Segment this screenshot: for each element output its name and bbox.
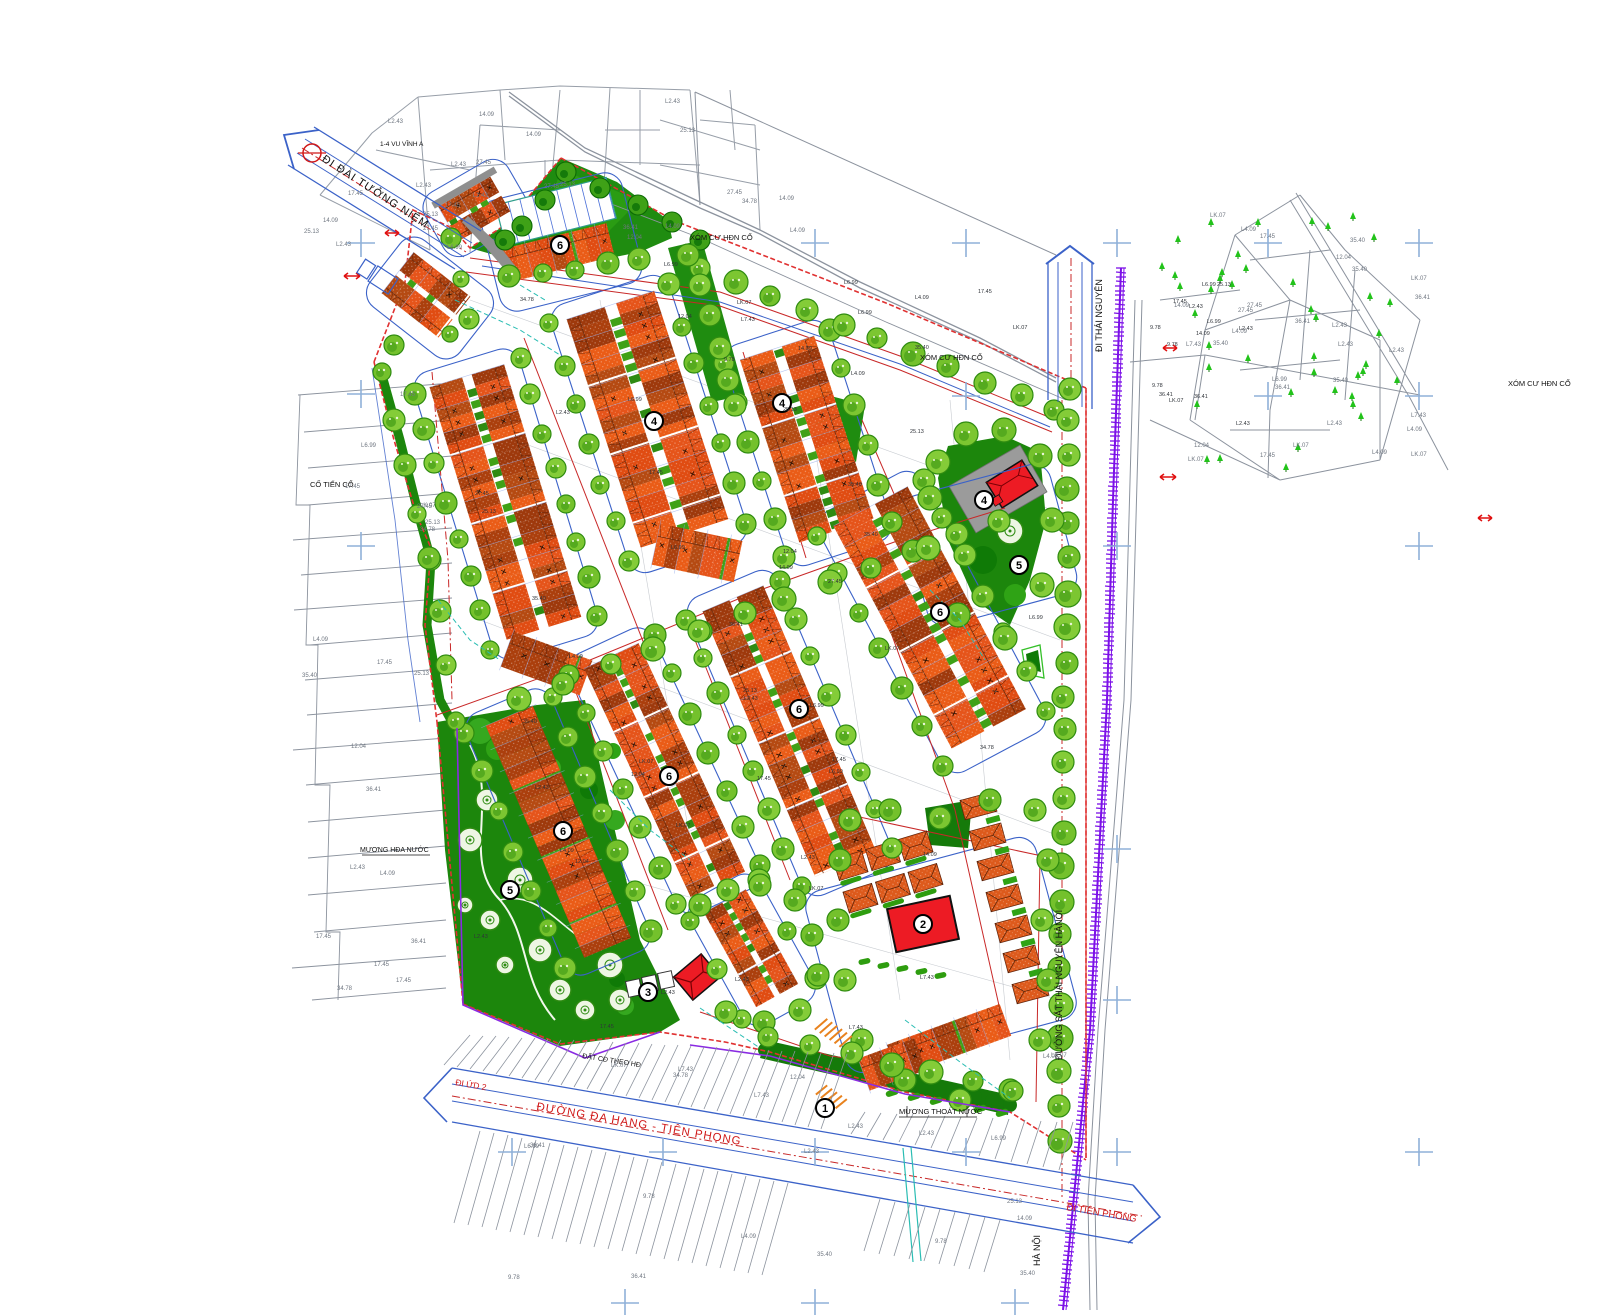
svg-text:L4.09: L4.09 (915, 295, 929, 301)
svg-text:L4.09: L4.09 (851, 371, 865, 377)
svg-text:9.78: 9.78 (724, 357, 735, 363)
svg-text:36.41: 36.41 (1275, 385, 1291, 391)
svg-text:17.45: 17.45 (377, 660, 393, 666)
svg-text:12.04: 12.04 (627, 235, 643, 241)
svg-text:ĐI THÁI NGUYÊN: ĐI THÁI NGUYÊN (1094, 279, 1104, 352)
svg-text:12.04: 12.04 (783, 549, 797, 555)
svg-text:25.13: 25.13 (743, 688, 757, 694)
svg-text:LK.07: LK.07 (1210, 213, 1226, 219)
svg-text:XÓM CƯ HĐN CỔ: XÓM CƯ HĐN CỔ (1508, 379, 1571, 388)
svg-text:27.45: 27.45 (475, 491, 489, 497)
svg-text:17.45: 17.45 (400, 392, 416, 398)
svg-text:L6.99: L6.99 (524, 1144, 540, 1150)
svg-text:17.45: 17.45 (345, 484, 361, 490)
svg-text:34.78: 34.78 (337, 986, 353, 992)
svg-text:MƯƠNG THOÁT NƯỚC: MƯƠNG THOÁT NƯỚC (899, 1107, 983, 1116)
svg-text:14.09: 14.09 (779, 565, 793, 571)
svg-text:L4.09: L4.09 (313, 637, 329, 643)
svg-text:LK.07: LK.07 (737, 300, 751, 306)
svg-text:36.41: 36.41 (1159, 392, 1173, 398)
svg-text:14.09: 14.09 (798, 346, 812, 352)
svg-text:25.13: 25.13 (482, 509, 496, 515)
svg-text:25.13: 25.13 (1217, 282, 1231, 288)
svg-text:9.78: 9.78 (643, 1194, 655, 1200)
svg-text:L6.99: L6.99 (361, 443, 377, 449)
svg-text:L2.43: L2.43 (350, 865, 366, 871)
svg-text:L2.43: L2.43 (1389, 348, 1405, 354)
svg-text:34.78: 34.78 (520, 297, 534, 303)
svg-text:XÓM CƯ HĐN CỔ: XÓM CƯ HĐN CỔ (920, 353, 983, 362)
svg-text:35.40: 35.40 (817, 1252, 833, 1258)
svg-text:14.09: 14.09 (479, 112, 495, 118)
svg-text:17.45: 17.45 (1260, 453, 1276, 459)
svg-text:LK.07: LK.07 (1411, 276, 1427, 282)
svg-text:17.45: 17.45 (978, 289, 992, 295)
svg-text:9.78: 9.78 (1152, 383, 1163, 389)
svg-text:L2.43: L2.43 (1236, 421, 1250, 427)
svg-text:L6.99: L6.99 (447, 245, 463, 251)
svg-text:12.04: 12.04 (631, 772, 645, 778)
svg-text:17.45: 17.45 (1173, 299, 1187, 305)
svg-text:35.40: 35.40 (864, 532, 878, 538)
svg-text:35.40: 35.40 (848, 482, 862, 488)
svg-text:25.13: 25.13 (680, 128, 696, 134)
svg-text:L4.09: L4.09 (560, 848, 574, 854)
svg-text:14.09: 14.09 (1196, 331, 1210, 337)
svg-text:L7.43: L7.43 (920, 975, 934, 981)
svg-text:L2.43: L2.43 (744, 696, 758, 702)
svg-text:35.40: 35.40 (1213, 341, 1229, 347)
svg-text:1: 1 (822, 1103, 828, 1115)
svg-text:L6.99: L6.99 (1207, 319, 1221, 325)
svg-text:L6.99: L6.99 (1029, 615, 1043, 621)
svg-text:14.09: 14.09 (526, 132, 542, 138)
svg-text:6: 6 (560, 826, 566, 838)
svg-text:L6.99: L6.99 (829, 769, 843, 775)
svg-text:L2.43: L2.43 (1239, 326, 1253, 332)
svg-text:17.45: 17.45 (445, 203, 461, 209)
svg-text:L2.43: L2.43 (416, 183, 432, 189)
svg-text:17.45: 17.45 (832, 757, 846, 763)
svg-text:4: 4 (651, 416, 658, 428)
svg-text:14.09: 14.09 (323, 218, 339, 224)
svg-text:14.09: 14.09 (665, 224, 681, 230)
svg-text:17.45: 17.45 (600, 1024, 614, 1030)
svg-text:36.41: 36.41 (411, 939, 427, 945)
svg-text:25.13: 25.13 (423, 212, 439, 218)
svg-text:27.45: 27.45 (544, 184, 560, 190)
svg-text:17.45: 17.45 (348, 191, 364, 197)
svg-text:L2.43: L2.43 (1189, 304, 1203, 310)
svg-text:35.40: 35.40 (1350, 238, 1366, 244)
svg-text:36.41: 36.41 (623, 225, 639, 231)
svg-text:12.04: 12.04 (1336, 255, 1352, 261)
svg-text:27.45: 27.45 (417, 504, 433, 510)
svg-text:12.04: 12.04 (678, 314, 692, 320)
svg-text:L7.43: L7.43 (1186, 342, 1202, 348)
svg-text:17.45: 17.45 (374, 962, 390, 968)
svg-text:L6.99: L6.99 (671, 545, 685, 551)
svg-text:MƯƠNG HĐA NƯỚC: MƯƠNG HĐA NƯỚC (360, 845, 429, 854)
svg-text:L2.43: L2.43 (804, 1149, 820, 1155)
svg-text:9.78: 9.78 (1167, 342, 1178, 348)
svg-text:L7.43: L7.43 (754, 1093, 770, 1099)
svg-text:L2.43: L2.43 (1338, 342, 1354, 348)
svg-text:L4.09: L4.09 (380, 871, 396, 877)
svg-text:3: 3 (645, 987, 651, 999)
svg-text:L7.43: L7.43 (1411, 413, 1427, 419)
svg-text:14.09: 14.09 (923, 852, 937, 858)
svg-text:17.45: 17.45 (396, 978, 412, 984)
svg-text:25.13: 25.13 (783, 407, 797, 413)
svg-text:4: 4 (981, 495, 988, 507)
svg-text:35.40: 35.40 (302, 673, 318, 679)
svg-text:L2.43: L2.43 (848, 1124, 864, 1130)
svg-text:L6.99: L6.99 (664, 262, 678, 268)
svg-text:9.78: 9.78 (935, 1239, 947, 1245)
svg-text:L2.43: L2.43 (1327, 421, 1343, 427)
svg-text:L4.09: L4.09 (1241, 227, 1257, 233)
svg-text:6: 6 (557, 240, 563, 252)
svg-text:14.09: 14.09 (1017, 1216, 1033, 1222)
svg-text:25.13: 25.13 (425, 520, 441, 526)
svg-text:34.78: 34.78 (420, 527, 436, 533)
svg-text:L6.99: L6.99 (858, 310, 872, 316)
svg-text:35.40: 35.40 (1020, 1271, 1036, 1277)
svg-text:XÓM CƯ HĐN CỔ: XÓM CƯ HĐN CỔ (690, 233, 753, 242)
svg-text:12.04: 12.04 (575, 859, 589, 865)
svg-text:L4.09: L4.09 (1372, 450, 1388, 456)
svg-text:LK.07: LK.07 (639, 759, 653, 765)
svg-text:L2.43: L2.43 (661, 990, 675, 996)
svg-text:L6.99: L6.99 (991, 1136, 1007, 1142)
svg-text:L4.09: L4.09 (741, 1234, 757, 1240)
svg-text:27.45: 27.45 (828, 579, 842, 585)
svg-text:35.40: 35.40 (1352, 267, 1368, 273)
svg-text:35.40: 35.40 (915, 345, 929, 351)
svg-text:LK.07: LK.07 (611, 1063, 627, 1069)
svg-text:L2.43: L2.43 (556, 410, 570, 416)
svg-text:17.45: 17.45 (649, 470, 663, 476)
svg-text:17.45: 17.45 (757, 776, 771, 782)
svg-text:L6.99: L6.99 (1272, 377, 1288, 383)
svg-text:LK.07: LK.07 (1169, 398, 1183, 404)
svg-text:HÀ NỘI: HÀ NỘI (1032, 1235, 1042, 1266)
svg-text:L2.43: L2.43 (919, 1131, 935, 1137)
svg-text:36.41: 36.41 (366, 787, 382, 793)
svg-text:35.40: 35.40 (1333, 378, 1349, 384)
svg-text:25.13: 25.13 (1007, 1199, 1023, 1205)
svg-text:6: 6 (937, 607, 943, 619)
svg-text:2: 2 (920, 919, 926, 931)
svg-text:LK.07: LK.07 (885, 646, 899, 652)
svg-text:L7.43: L7.43 (741, 317, 755, 323)
svg-text:L2.43: L2.43 (801, 855, 815, 861)
svg-text:5: 5 (1016, 560, 1022, 572)
svg-text:L6.99: L6.99 (844, 280, 858, 286)
svg-text:L6.99: L6.99 (1202, 282, 1216, 288)
svg-text:27.45: 27.45 (727, 190, 743, 196)
svg-text:9.78: 9.78 (508, 1275, 520, 1281)
svg-text:LK.07: LK.07 (1411, 452, 1427, 458)
svg-text:LK.07: LK.07 (1293, 443, 1309, 449)
svg-text:L7.43: L7.43 (678, 1067, 694, 1073)
svg-text:L2.43: L2.43 (665, 99, 681, 105)
svg-text:34.78: 34.78 (980, 745, 994, 751)
svg-text:25.13: 25.13 (304, 229, 320, 235)
svg-text:L6.99: L6.99 (628, 397, 642, 403)
svg-text:L4.09: L4.09 (569, 654, 583, 660)
svg-text:5: 5 (507, 885, 513, 897)
svg-text:L2.43: L2.43 (473, 193, 489, 199)
svg-text:L2.43: L2.43 (336, 242, 352, 248)
svg-text:L2.43: L2.43 (1332, 323, 1348, 329)
svg-text:L2.43: L2.43 (735, 977, 749, 983)
svg-text:9.78: 9.78 (1150, 325, 1161, 331)
svg-text:36.41: 36.41 (631, 1274, 647, 1280)
svg-text:L2.43: L2.43 (535, 785, 549, 791)
svg-text:17.45: 17.45 (1260, 234, 1276, 240)
svg-text:36.41: 36.41 (1295, 319, 1311, 325)
svg-text:L2.43: L2.43 (474, 934, 488, 940)
svg-text:LK.07: LK.07 (676, 823, 690, 829)
svg-text:27.45: 27.45 (1247, 303, 1263, 309)
svg-text:25.13: 25.13 (910, 429, 924, 435)
svg-text:27.45: 27.45 (476, 160, 492, 166)
svg-text:6: 6 (666, 771, 672, 783)
svg-text:6: 6 (796, 704, 802, 716)
svg-text:27.45: 27.45 (423, 226, 439, 232)
svg-text:35.40: 35.40 (523, 719, 537, 725)
svg-text:L2.43: L2.43 (451, 162, 467, 168)
svg-text:34.78: 34.78 (673, 1073, 689, 1079)
svg-text:L6.99: L6.99 (810, 703, 824, 709)
svg-text:L4.09: L4.09 (1407, 427, 1423, 433)
svg-text:34.78: 34.78 (742, 199, 758, 205)
svg-text:LK.07: LK.07 (1188, 457, 1204, 463)
svg-text:36.41: 36.41 (729, 622, 743, 628)
svg-text:12.04: 12.04 (1194, 443, 1210, 449)
svg-text:L2.43: L2.43 (388, 119, 404, 125)
svg-text:LK.07: LK.07 (1013, 325, 1027, 331)
svg-text:25.13: 25.13 (414, 671, 430, 677)
svg-text:25.13: 25.13 (560, 182, 576, 188)
svg-text:12.04: 12.04 (351, 744, 367, 750)
svg-text:14.09: 14.09 (779, 196, 795, 202)
svg-text:35.40: 35.40 (532, 596, 546, 602)
svg-text:L4.09: L4.09 (790, 228, 806, 234)
svg-text:LK.07: LK.07 (1051, 1053, 1067, 1059)
svg-text:ĐƯỜNG SẮT THÁI NGUYÊN HÀNỘI: ĐƯỜNG SẮT THÁI NGUYÊN HÀNỘI (1054, 910, 1064, 1060)
svg-text:36.41: 36.41 (1415, 295, 1431, 301)
svg-text:17.45: 17.45 (316, 934, 332, 940)
svg-text:12.04: 12.04 (790, 1075, 806, 1081)
svg-text:L7.43: L7.43 (849, 1025, 863, 1031)
svg-text:LK.07: LK.07 (809, 886, 823, 892)
svg-text:36.41: 36.41 (1194, 394, 1208, 400)
svg-text:1-4 VU VĨNH A: 1-4 VU VĨNH A (380, 139, 424, 148)
